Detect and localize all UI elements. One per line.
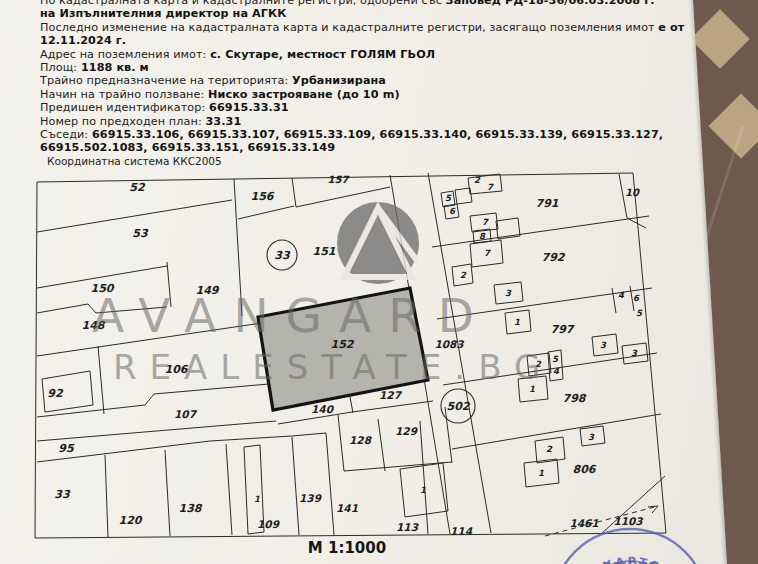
plot-label-107: 107 xyxy=(174,408,198,420)
header-line: Съседи: 66915.33.106, 66915.33.107, 6691… xyxy=(40,128,710,141)
building-label-2: 2 xyxy=(474,175,481,185)
plot-label-53: 53 xyxy=(132,227,149,240)
building-label-2: 2 xyxy=(535,359,542,369)
building-label-3: 3 xyxy=(631,348,638,358)
plot-label-806: 806 xyxy=(573,463,597,476)
map-border xyxy=(35,173,666,538)
circled-label-33: 33 xyxy=(274,249,291,262)
plot-label-1083: 1083 xyxy=(434,338,464,350)
building-label-3: 3 xyxy=(600,340,607,350)
building-label-1: 1 xyxy=(420,485,426,495)
header-line: 66915.502.1083, 66915.33.151, 66915.33.1… xyxy=(40,141,710,154)
plot-label-10: 10 xyxy=(625,187,640,198)
header-line: Площ: 1188 кв. м xyxy=(40,61,710,74)
carpet-diamond-pattern xyxy=(690,9,749,68)
header-line: Начин на трайно ползване: Ниско застрояв… xyxy=(40,88,710,101)
building-label-5: 5 xyxy=(636,308,643,318)
plot-label-140: 140 xyxy=(311,403,335,415)
plot-label-157: 157 xyxy=(328,174,350,185)
building-label-5: 5 xyxy=(445,193,452,203)
building-label-7: 7 xyxy=(484,248,491,258)
plot-label-150: 150 xyxy=(91,282,115,295)
map-scale-label: М 1:1000 xyxy=(282,539,412,557)
plot-label-152: 152 xyxy=(331,338,355,351)
parcel-boundaries xyxy=(37,178,452,537)
plot-label-797: 797 xyxy=(551,323,575,336)
header-line: Трайно предназначение на територията: Ур… xyxy=(40,74,710,87)
header-line: Адрес на поземления имот: с. Скутаре, ме… xyxy=(40,48,710,61)
header-line: Номер по предходен план: 33.31 xyxy=(40,115,710,128)
plot-label-113: 113 xyxy=(396,521,419,533)
plot-label-114: 114 xyxy=(450,525,473,537)
building-label-3: 3 xyxy=(588,432,595,442)
plot-label-798: 798 xyxy=(563,392,587,405)
building-label-7: 7 xyxy=(487,182,494,192)
plot-label-33: 33 xyxy=(54,488,71,501)
building-label-6: 6 xyxy=(633,293,640,303)
building-label-1: 1 xyxy=(538,468,544,478)
building-label-6: 6 xyxy=(449,206,456,216)
plot-label-148: 148 xyxy=(82,319,106,332)
building-label-8: 8 xyxy=(479,231,486,241)
highlighted-plot-152 xyxy=(258,288,428,410)
watermark-text: AVANGARD xyxy=(92,288,491,343)
building-label-5: 5 xyxy=(552,354,559,364)
building-label-1: 1 xyxy=(254,494,260,504)
coordinate-system-label: Координатна система ККС2005 xyxy=(47,155,222,167)
official-stamp: ЗИЯ, КАРТОГРАФ СЛУЖБ xyxy=(535,522,745,564)
plot-label-792: 792 xyxy=(542,251,566,264)
map-circled-labels: 33502 xyxy=(267,240,475,423)
plot-label-139: 139 xyxy=(299,492,323,504)
stamp-inner-text: СЛУЖБ xyxy=(602,559,658,564)
avangard-triangle-logo-icon xyxy=(337,202,419,284)
plot-label-128: 128 xyxy=(349,434,373,446)
plot-label-149: 149 xyxy=(196,284,220,297)
building-label-1: 1 xyxy=(514,317,520,327)
plot-label-138: 138 xyxy=(179,502,203,515)
header-line: на Изпълнителния директор на АГКК xyxy=(40,7,710,20)
building-label-1: 1 xyxy=(529,384,535,394)
circled-label-502: 502 xyxy=(447,400,471,413)
circled-label-ring xyxy=(267,240,297,270)
plot-label-95: 95 xyxy=(58,442,75,455)
street-line xyxy=(428,173,491,533)
street-line xyxy=(390,175,450,534)
circled-label-ring xyxy=(441,389,475,423)
building-label-2: 2 xyxy=(546,444,553,454)
plot-label-120: 120 xyxy=(119,514,143,527)
watermark-text: REALESTATE.BG xyxy=(113,347,553,387)
map-plot-labels: 5215615753151150149148152106921079533120… xyxy=(47,174,643,537)
plot-label-92: 92 xyxy=(47,387,64,400)
plot-label-109: 109 xyxy=(257,518,281,530)
document-paper: По кадастралната карта и кадастралните р… xyxy=(0,0,758,564)
header-line: 12.11.2024 г. xyxy=(40,34,710,47)
plot-label-791: 791 xyxy=(536,197,559,210)
building-label-3: 3 xyxy=(505,288,512,298)
header-line: Последно изменение на кадастралната карт… xyxy=(40,21,710,34)
plot-label-156: 156 xyxy=(251,190,275,203)
plot-label-151: 151 xyxy=(313,245,336,258)
building-label-2: 2 xyxy=(460,270,467,280)
building-label-7: 7 xyxy=(482,217,489,227)
header-line: Предишен идентификатор: 66915.33.31 xyxy=(40,101,710,114)
plot-label-141: 141 xyxy=(336,502,358,514)
plot-label-127: 127 xyxy=(379,389,403,401)
plot-label-106: 106 xyxy=(165,363,189,376)
plot-label-52: 52 xyxy=(129,181,146,194)
document-header-text: По кадастралната карта и кадастралните р… xyxy=(40,0,710,155)
photo-background: По кадастралната карта и кадастралните р… xyxy=(0,0,758,564)
building-label-4: 4 xyxy=(618,290,625,300)
header-line: По кадастралната карта и кадастралните р… xyxy=(40,0,710,7)
plot-label-129: 129 xyxy=(395,425,419,437)
building-label-4: 4 xyxy=(553,366,560,376)
parcel-boundaries xyxy=(432,174,665,536)
